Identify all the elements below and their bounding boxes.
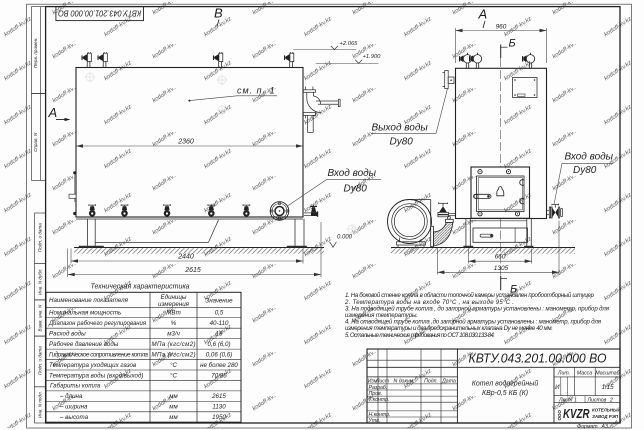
svg-text:Dy80: Dy80 xyxy=(573,165,597,176)
svg-text:Габариты котла: Габариты котла xyxy=(50,383,101,390)
svg-text:2615: 2615 xyxy=(211,393,226,400)
svg-text:мм: мм xyxy=(169,404,178,411)
svg-text:2440: 2440 xyxy=(177,254,194,261)
svg-text:Масштаб: Масштаб xyxy=(595,371,620,377)
svg-text:КВТУ.043.201.00.000 ВО: КВТУ.043.201.00.000 ВО xyxy=(58,9,142,18)
svg-text:2360: 2360 xyxy=(177,139,194,146)
svg-text:Перв. примен.: Перв. примен. xyxy=(33,37,38,68)
svg-text:МПа (кгс/см2): МПа (кгс/см2) xyxy=(152,341,196,348)
svg-text:ООО: ООО xyxy=(557,410,562,421)
svg-text:Единицы: Единицы xyxy=(161,294,187,301)
svg-text:N докум.: N докум. xyxy=(394,378,415,384)
svg-text:– высота: – высота xyxy=(59,414,89,421)
svg-text:Лист: Лист xyxy=(558,398,573,404)
svg-text:Взам. инв. N: Взам. инв. N xyxy=(38,304,43,331)
svg-text:И: И xyxy=(555,384,560,391)
svg-text:А3: А3 xyxy=(601,424,608,430)
svg-text:Dy80: Dy80 xyxy=(390,137,414,148)
svg-text:Б: Б xyxy=(509,38,516,50)
svg-text:2615: 2615 xyxy=(184,267,201,274)
svg-text:°С: °С xyxy=(170,362,177,369)
svg-text:1:15: 1:15 xyxy=(601,384,614,391)
svg-text:см. п. 1: см. п. 1 xyxy=(237,86,276,96)
svg-text:Dy80: Dy80 xyxy=(344,184,368,195)
svg-text:Рабочее давление воды: Рабочее давление воды xyxy=(49,341,119,348)
svg-text:Формат: Формат xyxy=(577,424,598,430)
svg-text:Лист: Лист xyxy=(375,378,390,384)
svg-text:Температура уходящих газов: Температура уходящих газов xyxy=(49,362,137,369)
svg-text:1305: 1305 xyxy=(494,265,509,272)
svg-text:+1.900: +1.900 xyxy=(363,54,382,60)
svg-text:Подп. и дата: Подп. и дата xyxy=(38,223,43,252)
svg-text:Температура воды (вход/выход): Температура воды (вход/выход) xyxy=(49,372,143,379)
svg-text:0,5: 0,5 xyxy=(215,310,224,317)
svg-text:0.000: 0.000 xyxy=(337,234,353,240)
svg-text:%: % xyxy=(171,320,177,327)
svg-text:Гидравлическое сопротивление к: Гидравлическое сопротивление котла xyxy=(49,351,149,358)
svg-text:Лит.: Лит. xyxy=(557,371,570,377)
svg-text:– ширина: – ширина xyxy=(59,404,88,411)
svg-text:Техническая характеристика: Техническая характеристика xyxy=(90,284,189,291)
svg-text:660: 660 xyxy=(495,254,506,261)
svg-text:– длина: – длина xyxy=(59,393,83,400)
svg-text:Листов: Листов xyxy=(587,398,607,404)
svg-text:Н.контр.: Н.контр. xyxy=(369,412,391,418)
svg-text:Справ. N: Справ. N xyxy=(33,132,38,152)
svg-text:мм: мм xyxy=(169,393,178,400)
svg-text:Инв. N дубл.: Инв. N дубл. xyxy=(38,268,43,295)
svg-text:18: 18 xyxy=(216,330,223,337)
svg-text:1: 1 xyxy=(574,398,577,404)
svg-text:КВТУ.043.201.00.000 ВО: КВТУ.043.201.00.000 ВО xyxy=(469,352,607,366)
svg-text:0,06 (0,6): 0,06 (0,6) xyxy=(206,351,232,358)
svg-text:КОТЕЛЬНЫЙ: КОТЕЛЬНЫЙ xyxy=(592,408,621,413)
svg-text:Значение: Значение xyxy=(205,298,233,305)
svg-text:Вход воды: Вход воды xyxy=(328,168,377,179)
svg-text:В: В xyxy=(214,6,223,21)
svg-text:5. Остальные технические требо: 5. Остальные технические требования по О… xyxy=(345,332,495,339)
svg-text:МВт: МВт xyxy=(166,310,180,317)
svg-text:2: 2 xyxy=(609,398,613,404)
svg-text:МПа (кгс/см2): МПа (кгс/см2) xyxy=(152,351,196,358)
svg-text:Масса: Масса xyxy=(577,371,592,377)
svg-text:не более 280: не более 280 xyxy=(200,362,238,369)
svg-text:960: 960 xyxy=(496,23,507,30)
svg-text:мм: мм xyxy=(169,414,178,421)
svg-text:Выход воды: Выход воды xyxy=(372,123,429,134)
svg-text:Подп.: Подп. xyxy=(424,378,438,384)
svg-text:Утв.: Утв. xyxy=(369,418,381,424)
svg-text:Диапазон рабочего регулировани: Диапазон рабочего регулирования xyxy=(48,320,147,327)
svg-text:измерения: измерения xyxy=(158,301,190,308)
svg-text:А: А xyxy=(478,7,488,22)
svg-text:+2.065: +2.065 xyxy=(340,41,359,47)
svg-text:KVZR: KVZR xyxy=(563,407,590,421)
svg-text:0,6 (6,0): 0,6 (6,0) xyxy=(207,341,230,348)
svg-text:Разраб.: Разраб. xyxy=(369,385,388,391)
svg-text:Дата: Дата xyxy=(441,378,456,384)
svg-text:°С: °С xyxy=(170,372,177,379)
svg-text:ЗАВОД РЭП: ЗАВОД РЭП xyxy=(592,414,619,419)
svg-text:Вход воды: Вход воды xyxy=(565,152,614,163)
svg-text:Инв. N подл.: Инв. N подл. xyxy=(38,391,43,418)
svg-text:Пров.: Пров. xyxy=(369,391,383,397)
svg-text:КВр-0,5 КБ (К): КВр-0,5 КБ (К) xyxy=(482,390,528,397)
svg-text:А: А xyxy=(48,105,58,120)
svg-text:Наименование показателя: Наименование показателя xyxy=(49,297,129,304)
svg-text:м3/ч: м3/ч xyxy=(167,330,180,337)
svg-text:70/95: 70/95 xyxy=(211,372,227,379)
svg-text:Расход воды: Расход воды xyxy=(49,330,86,337)
svg-text:Котел водогрейный: Котел водогрейный xyxy=(472,380,539,388)
svg-text:1130: 1130 xyxy=(212,404,226,411)
svg-text:Номинальная мощность: Номинальная мощность xyxy=(49,310,121,317)
svg-text:Подп. и дата: Подп. и дата xyxy=(38,346,43,375)
svg-text:40-110: 40-110 xyxy=(210,320,229,327)
svg-text:Т.контр.: Т.контр. xyxy=(369,397,390,403)
svg-text:1950: 1950 xyxy=(212,414,226,421)
